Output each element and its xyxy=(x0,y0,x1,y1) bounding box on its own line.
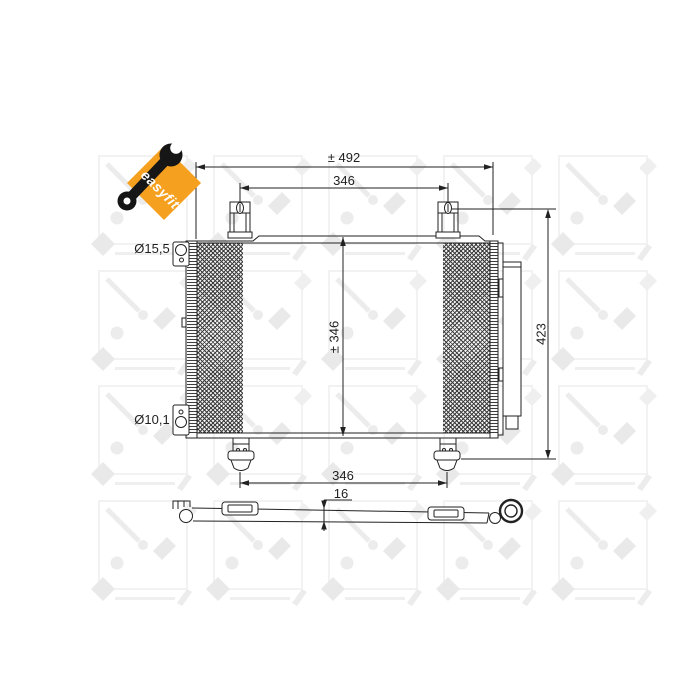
easyfit-badge: easyfit xyxy=(110,128,220,238)
dim-overall-height: 423 xyxy=(535,323,548,345)
mounting-foot-bottom-right xyxy=(434,438,460,471)
dim-core-height: ± 346 xyxy=(328,321,341,353)
receiver-drier xyxy=(499,262,521,429)
dim-top-bracket-span: 346 xyxy=(333,174,355,187)
dim-profile-thickness: 16 xyxy=(334,487,348,500)
right-side-plate xyxy=(498,243,503,435)
label-top-fitting-diameter: Ø15,5 xyxy=(134,242,169,255)
mounting-bracket-top-left xyxy=(228,202,252,238)
dim-bottom-foot-span: 346 xyxy=(332,469,354,482)
condenser-drawing-canvas: easyfit ± 492 346 ± 346 423 346 16 Ø15,5… xyxy=(0,0,700,700)
mounting-bracket-top-right xyxy=(436,202,460,238)
side-view-right-pipe-end xyxy=(490,513,501,524)
bottom-outlet-plate xyxy=(173,405,189,435)
top-inlet-plate xyxy=(173,242,189,266)
mounting-foot-bottom-left xyxy=(228,438,254,471)
label-bottom-fitting-diameter: Ø10,1 xyxy=(134,413,169,426)
side-view-left-pipe-end xyxy=(180,510,193,523)
condenser-side-view xyxy=(173,500,522,524)
condenser-technical-drawing xyxy=(0,0,700,700)
dim-total-width: ± 492 xyxy=(328,151,360,164)
